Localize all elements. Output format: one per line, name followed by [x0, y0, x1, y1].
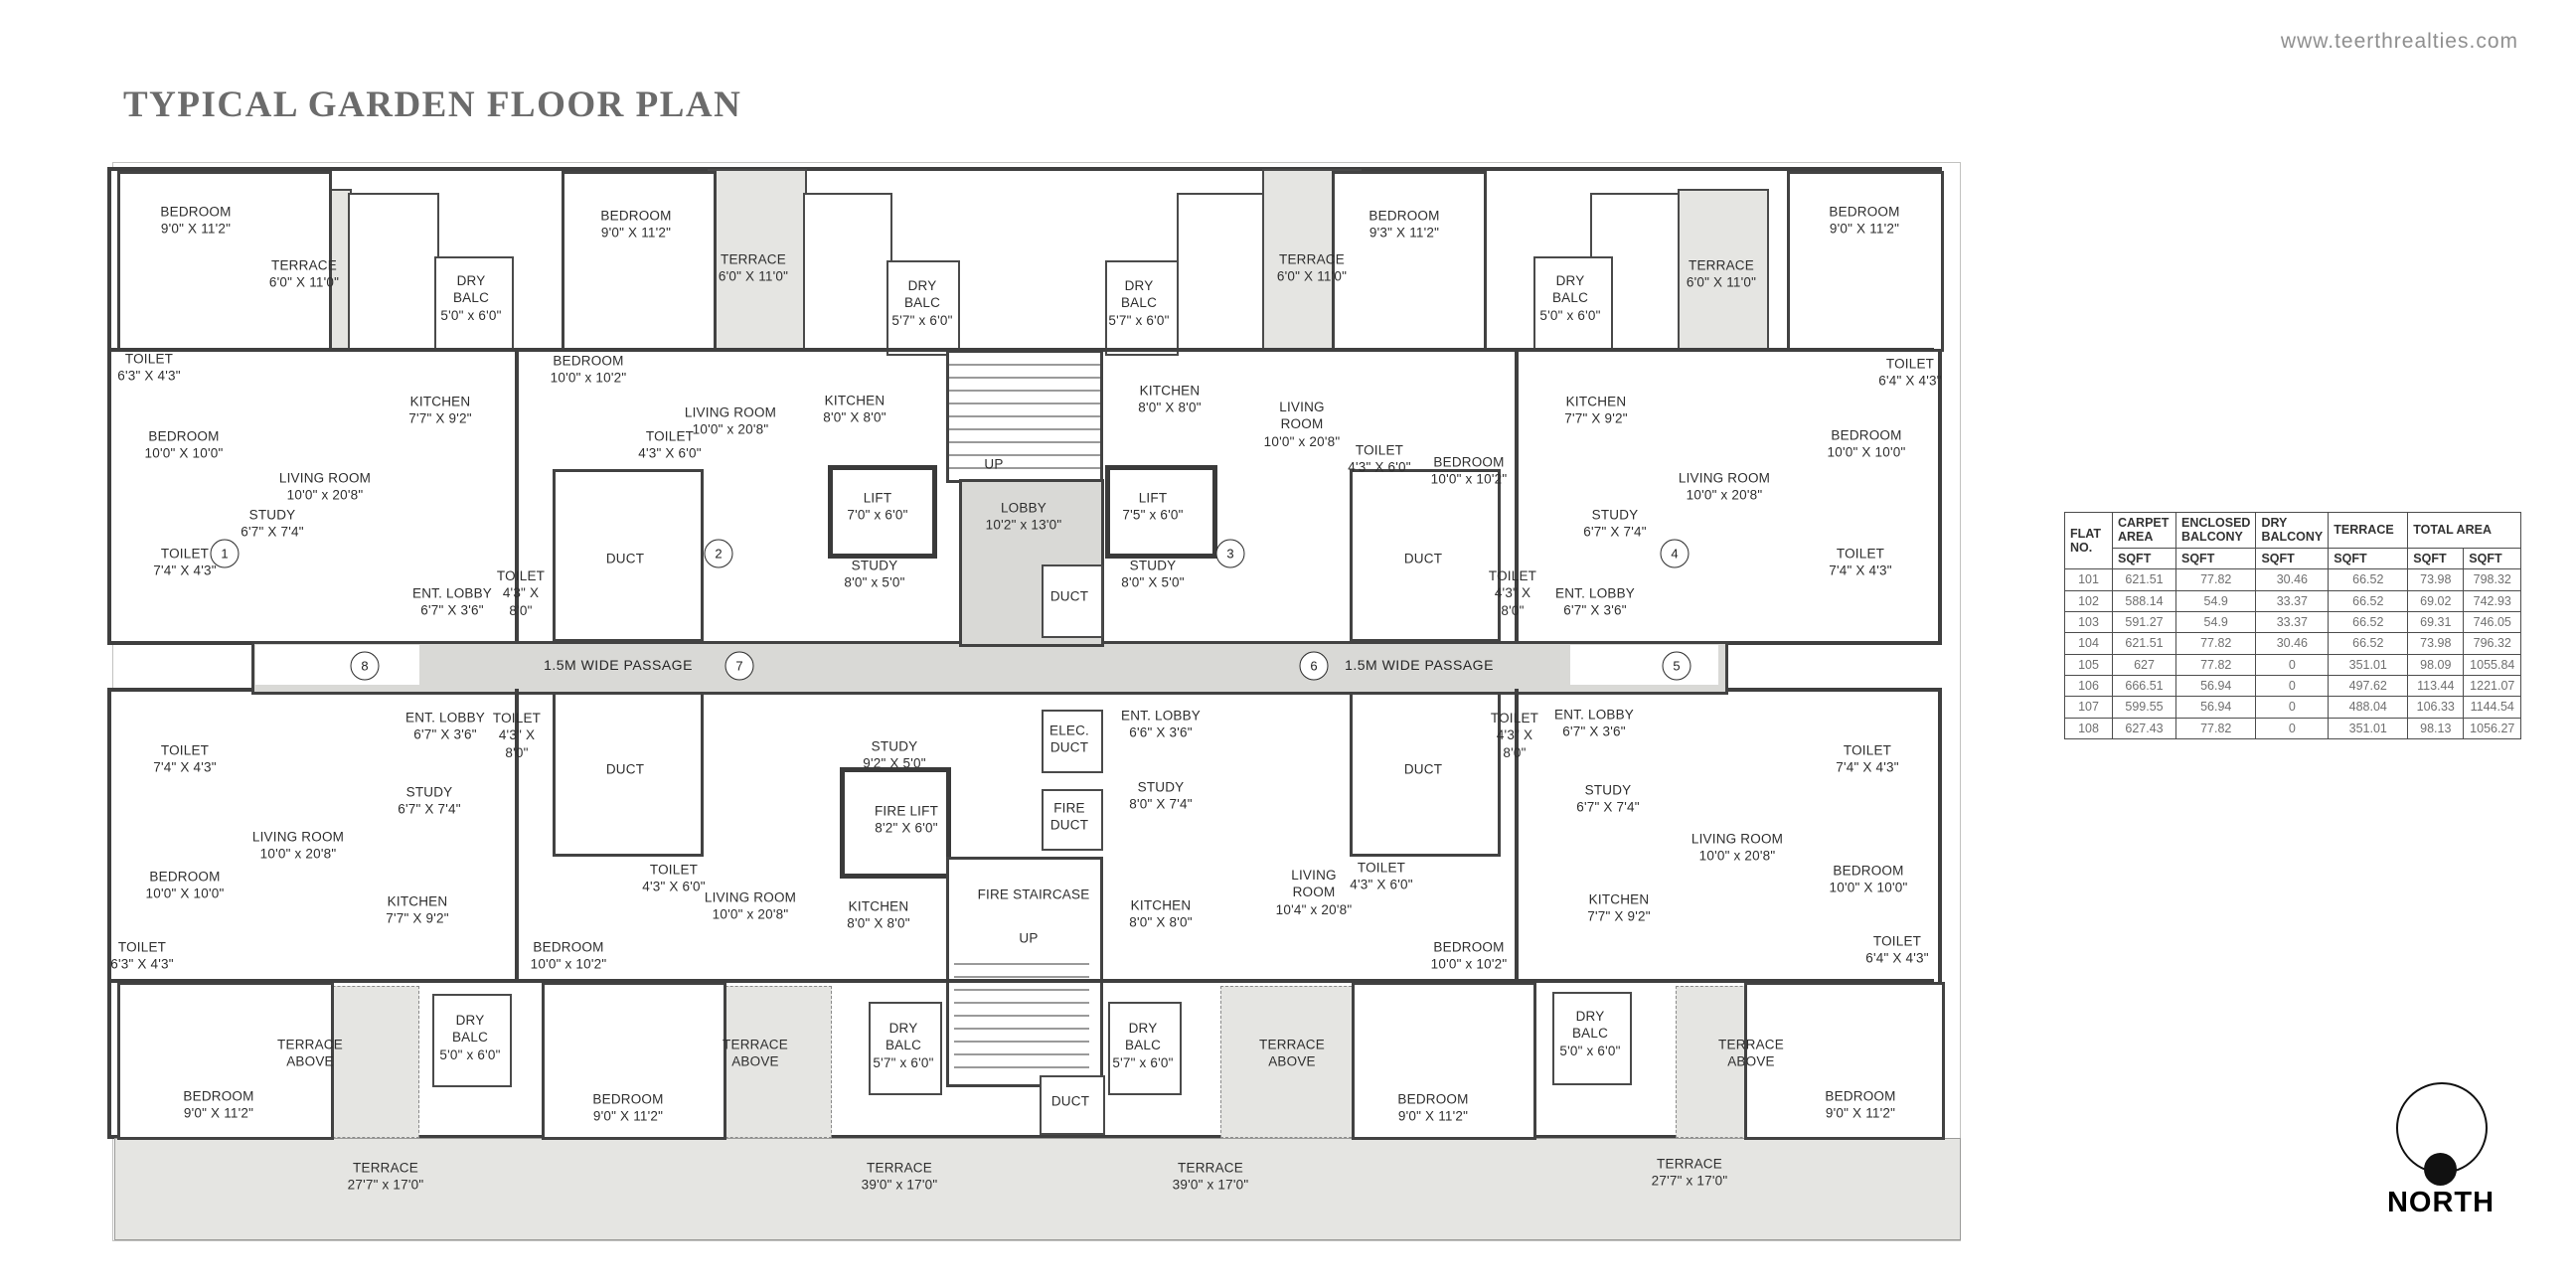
- room-label: DRY BALC 5'0" x 6'0": [439, 1012, 500, 1063]
- corridor-end-left: [255, 645, 419, 685]
- room-label: TERRACE 6'0" X 11'0": [719, 251, 788, 286]
- room-label: ENT. LOBBY 6'7" X 3'6": [1555, 585, 1635, 620]
- room-label: BEDROOM 10'0" x 10'2": [531, 939, 607, 974]
- room-label: KITCHEN 7'7" X 9'2": [1564, 394, 1627, 428]
- wall: [111, 348, 1934, 352]
- balcony-zone: [348, 193, 439, 352]
- room-label: DUCT: [1051, 1092, 1089, 1109]
- table-unit-cell: SQFT: [2408, 548, 2464, 568]
- room-label: BEDROOM 10'0" x 10'2": [1431, 454, 1508, 489]
- corridor: [251, 641, 1728, 695]
- table-cell: 798.32: [2464, 569, 2521, 590]
- room-label: ENT. LOBBY 6'7" X 3'6": [405, 710, 485, 744]
- table-cell: 77.82: [2176, 569, 2256, 590]
- room-label: BEDROOM 9'0" X 11'2": [600, 208, 671, 242]
- staircase: [946, 350, 1103, 483]
- room-label: LIVING ROOM 10'0" x 20'8": [252, 829, 344, 864]
- room-label: TERRACE ABOVE: [723, 1037, 788, 1071]
- room-label: BEDROOM 10'0" X 10'0": [146, 869, 225, 903]
- table-row: 104621.5177.8230.4666.5273.98796.32: [2065, 633, 2521, 654]
- room-label: BEDROOM 9'0" X 11'2": [1825, 1088, 1895, 1123]
- room-label: TOILET 4'3" X 6'0": [1350, 860, 1412, 894]
- room-label: ENT. LOBBY 6'7" X 3'6": [412, 585, 492, 620]
- room-label: LIVING ROOM 10'0" x 20'8": [1264, 399, 1341, 450]
- table-cell: 621.51: [2113, 633, 2176, 654]
- table-cell: 106: [2065, 676, 2113, 697]
- table-cell: 69.02: [2408, 590, 2464, 611]
- table-cell: 0: [2256, 697, 2329, 718]
- fire-staircase-steps: [954, 952, 1089, 1071]
- room-label: STUDY 6'7" X 7'4": [398, 784, 460, 819]
- table-cell: 0: [2256, 654, 2329, 675]
- room-label: DUCT: [1404, 550, 1442, 566]
- room-label: LIVING ROOM 10'0" x 20'8": [685, 404, 776, 439]
- room-label: TERRACE ABOVE: [1259, 1037, 1325, 1071]
- table-cell: 588.14: [2113, 590, 2176, 611]
- room-label: DRY BALC 5'7" x 6'0": [873, 1020, 933, 1071]
- table-cell: 101: [2065, 569, 2113, 590]
- table-cell: 113.44: [2408, 676, 2464, 697]
- room-label: TERRACE 27'7" x 17'0": [348, 1160, 424, 1195]
- room-label: UP: [984, 455, 1003, 472]
- table-unit-cell: SQFT: [2464, 548, 2521, 568]
- table-unit-cell: SQFT: [2113, 548, 2176, 568]
- room-label: BEDROOM 10'0" X 10'0": [1828, 427, 1906, 462]
- room-label: TERRACE 6'0" X 11'0": [1687, 257, 1756, 292]
- table-cell: 0: [2256, 718, 2329, 738]
- room-label: KITCHEN 8'0" X 8'0": [1129, 897, 1192, 932]
- room-label: LIFT 7'5" x 6'0": [1122, 490, 1183, 525]
- table-cell: 56.94: [2176, 676, 2256, 697]
- table-cell: 742.93: [2464, 590, 2521, 611]
- table-cell: 107: [2065, 697, 2113, 718]
- room-label: LIFT 7'0" x 6'0": [847, 490, 907, 525]
- table-row: 10562777.820351.0198.091055.84: [2065, 654, 2521, 675]
- room-label: TERRACE 39'0" x 17'0": [1173, 1160, 1249, 1195]
- room-label: ENT. LOBBY 6'6" X 3'6": [1121, 708, 1201, 742]
- room-label: TOILET 4'3" X 8'0": [1489, 567, 1536, 619]
- table-cell: 591.27: [2113, 611, 2176, 632]
- room-label: TOILET 6'3" X 4'3": [110, 939, 173, 974]
- table-cell: 56.94: [2176, 697, 2256, 718]
- table-cell: 666.51: [2113, 676, 2176, 697]
- table-cell: 30.46: [2256, 633, 2329, 654]
- bedroom-zone: [1787, 171, 1944, 352]
- room-label: BEDROOM 9'3" X 11'2": [1368, 208, 1439, 242]
- table-cell: 104: [2065, 633, 2113, 654]
- room-label: TOILET 4'3" X 6'0": [642, 862, 705, 896]
- room-label: TERRACE ABOVE: [277, 1037, 343, 1071]
- flat-number-marker: 3: [1216, 540, 1245, 568]
- room-label: KITCHEN 8'0" X 8'0": [847, 898, 909, 933]
- passage-label: 1.5M WIDE PASSAGE: [1345, 657, 1494, 675]
- table-cell: 627: [2113, 654, 2176, 675]
- room-label: DRY BALC 5'7" x 6'0": [1112, 1020, 1173, 1071]
- wall: [111, 979, 1934, 983]
- room-label: STUDY 6'7" X 7'4": [1576, 782, 1639, 817]
- table-cell: 69.31: [2408, 611, 2464, 632]
- area-table: FLAT NO.CARPET AREAENCLOSED BALCONYDRY B…: [2064, 512, 2521, 739]
- table-cell: 66.52: [2329, 633, 2408, 654]
- room-label: BEDROOM 9'0" X 11'2": [592, 1091, 663, 1126]
- table-cell: 73.98: [2408, 569, 2464, 590]
- flat-number-marker: 6: [1300, 652, 1329, 681]
- flat-number-marker: 2: [705, 540, 733, 568]
- room-label: KITCHEN 7'7" X 9'2": [1587, 891, 1650, 926]
- room-label: UP: [1019, 929, 1038, 946]
- table-row: 101621.5177.8230.4666.5273.98798.32: [2065, 569, 2521, 590]
- north-label: NORTH: [2365, 1187, 2516, 1219]
- table-cell: 98.13: [2408, 718, 2464, 738]
- table-cell: 66.52: [2329, 611, 2408, 632]
- table-cell: 54.9: [2176, 590, 2256, 611]
- room-label: FIRE DUCT: [1050, 800, 1088, 835]
- room-label: LIVING ROOM 10'0" x 20'8": [1679, 470, 1770, 505]
- room-label: BEDROOM 9'0" X 11'2": [183, 1088, 253, 1123]
- room-label: DRY BALC 5'0" x 6'0": [1539, 272, 1600, 324]
- room-label: TOILET 6'4" X 4'3": [1878, 356, 1941, 391]
- room-label: DUCT: [1404, 760, 1442, 777]
- table-cell: 33.37: [2256, 611, 2329, 632]
- table-cell: 351.01: [2329, 718, 2408, 738]
- room-label: STUDY 8'0" X 5'0": [1121, 558, 1184, 592]
- flat-number-marker: 5: [1663, 652, 1691, 681]
- flat-number-marker: 7: [725, 652, 754, 681]
- room-label: KITCHEN 7'7" X 9'2": [408, 394, 471, 428]
- room-label: TOILET 7'4" X 4'3": [153, 546, 216, 580]
- table-cell: 103: [2065, 611, 2113, 632]
- room-label: LIVING ROOM 10'4" x 20'8": [1276, 867, 1353, 918]
- room-label: STUDY 8'0" x 5'0": [844, 558, 904, 592]
- table-cell: 488.04: [2329, 697, 2408, 718]
- room-label: FIRE STAIRCASE: [978, 885, 1090, 902]
- passage-label: 1.5M WIDE PASSAGE: [544, 657, 693, 675]
- table-cell: 621.51: [2113, 569, 2176, 590]
- table-cell: 1055.84: [2464, 654, 2521, 675]
- room-label: LIVING ROOM 10'0" x 20'8": [1691, 831, 1783, 866]
- table-header-cell: TOTAL AREA: [2408, 513, 2521, 549]
- room-label: TOILET 4'3" X 6'0": [1348, 442, 1410, 477]
- corridor-end-right: [1570, 645, 1718, 685]
- area-table-body: 101621.5177.8230.4666.5273.98798.3210258…: [2065, 569, 2521, 739]
- table-cell: 66.52: [2329, 569, 2408, 590]
- room-label: KITCHEN 8'0" X 8'0": [1138, 383, 1201, 417]
- table-cell: 627.43: [2113, 718, 2176, 738]
- flat-number-marker: 4: [1661, 540, 1690, 568]
- bedroom-zone: [1332, 171, 1487, 352]
- table-unit-cell: SQFT: [2176, 548, 2256, 568]
- room-label: ELEC. DUCT: [1049, 723, 1089, 757]
- table-row: 103591.2754.933.3766.5269.31746.05: [2065, 611, 2521, 632]
- table-cell: 351.01: [2329, 654, 2408, 675]
- area-table-head: FLAT NO.CARPET AREAENCLOSED BALCONYDRY B…: [2065, 513, 2521, 569]
- table-header-cell: CARPET AREA: [2113, 513, 2176, 549]
- room-label: BEDROOM 10'0" X 10'0": [1830, 863, 1908, 897]
- room-label: ENT. LOBBY 6'7" X 3'6": [1554, 707, 1634, 741]
- balcony-zone: [803, 193, 892, 352]
- room-label: DUCT: [606, 550, 644, 566]
- table-cell: 102: [2065, 590, 2113, 611]
- table-cell: 1056.27: [2464, 718, 2521, 738]
- room-label: DRY BALC 5'7" x 6'0": [1108, 277, 1169, 329]
- room-label: DRY BALC 5'7" x 6'0": [891, 277, 952, 329]
- room-label: BEDROOM 9'0" X 11'2": [1829, 204, 1899, 239]
- room-label: TOILET 6'4" X 4'3": [1865, 933, 1928, 968]
- room-label: TOILET 6'3" X 4'3": [117, 351, 180, 386]
- room-label: TERRACE 6'0" X 11'0": [269, 257, 339, 292]
- flat-number-marker: 1: [211, 540, 240, 568]
- table-header-cell: ENCLOSED BALCONY: [2176, 513, 2256, 549]
- table-cell: 108: [2065, 718, 2113, 738]
- room-label: BEDROOM 10'0" X 10'0": [145, 428, 224, 463]
- room-label: TERRACE 39'0" x 17'0": [862, 1160, 938, 1195]
- room-label: STUDY 6'7" X 7'4": [241, 507, 303, 542]
- room-label: BEDROOM 10'0" x 10'2": [551, 353, 627, 388]
- room-label: TOILET 7'4" X 4'3": [1836, 742, 1898, 777]
- table-header-cell: FLAT NO.: [2065, 513, 2113, 569]
- table-cell: 77.82: [2176, 633, 2256, 654]
- table-cell: 54.9: [2176, 611, 2256, 632]
- flat-number-marker: 8: [351, 652, 380, 681]
- table-cell: 77.82: [2176, 654, 2256, 675]
- room-label: DRY BALC 5'0" x 6'0": [1559, 1008, 1620, 1059]
- table-cell: 77.82: [2176, 718, 2256, 738]
- table-cell: 30.46: [2256, 569, 2329, 590]
- table-cell: 1221.07: [2464, 676, 2521, 697]
- website-url: www.teerthrealties.com: [2281, 30, 2518, 54]
- north-compass-dot-icon: [2424, 1153, 2457, 1186]
- table-row: 106666.5156.940497.62113.441221.07: [2065, 676, 2521, 697]
- room-label: TOILET 7'4" X 4'3": [153, 742, 216, 777]
- room-label: TOILET 7'4" X 4'3": [1829, 546, 1891, 580]
- room-label: BEDROOM 10'0" x 10'2": [1431, 939, 1508, 974]
- room-label: TOILET 4'3" X 8'0": [497, 567, 545, 619]
- table-header-cell: DRY BALCONY: [2256, 513, 2329, 549]
- room-label: DUCT: [606, 760, 644, 777]
- table-row: 102588.1454.933.3766.5269.02742.93: [2065, 590, 2521, 611]
- table-cell: 1144.54: [2464, 697, 2521, 718]
- floor-plan: BEDROOM 9'0" X 11'2"TERRACE 6'0" X 11'0"…: [0, 0, 2037, 1288]
- room-label: LIVING ROOM 10'0" x 20'8": [279, 470, 371, 505]
- table-cell: 73.98: [2408, 633, 2464, 654]
- table-cell: 98.09: [2408, 654, 2464, 675]
- table-unit-cell: SQFT: [2256, 548, 2329, 568]
- room-label: STUDY 8'0" X 7'4": [1129, 779, 1192, 814]
- table-cell: 599.55: [2113, 697, 2176, 718]
- table-cell: 796.32: [2464, 633, 2521, 654]
- room-label: KITCHEN 7'7" X 9'2": [386, 893, 448, 928]
- table-cell: 33.37: [2256, 590, 2329, 611]
- room-label: TOILET 4'3" X 8'0": [493, 710, 541, 761]
- table-header-cell: TERRACE: [2329, 513, 2408, 549]
- table-cell: 0: [2256, 676, 2329, 697]
- room-label: FIRE LIFT 8'2" X 6'0": [875, 803, 938, 838]
- table-cell: 746.05: [2464, 611, 2521, 632]
- table-cell: 66.52: [2329, 590, 2408, 611]
- table-cell: 106.33: [2408, 697, 2464, 718]
- bedroom-zone: [562, 171, 717, 352]
- room-label: STUDY 9'2" X 5'0": [863, 738, 925, 773]
- room-label: DUCT: [1050, 587, 1088, 604]
- table-unit-cell: SQFT: [2329, 548, 2408, 568]
- room-label: DRY BALC 5'0" x 6'0": [440, 272, 501, 324]
- room-label: TOILET 4'3" X 8'0": [1491, 710, 1538, 761]
- table-row: 108627.4377.820351.0198.131056.27: [2065, 718, 2521, 738]
- balcony-zone: [1177, 193, 1266, 352]
- table-row: 107599.5556.940488.04106.331144.54: [2065, 697, 2521, 718]
- room-label: TERRACE 6'0" X 11'0": [1277, 251, 1347, 286]
- room-label: BEDROOM 9'0" X 11'2": [1397, 1091, 1468, 1126]
- room-label: TERRACE 27'7" x 17'0": [1652, 1156, 1728, 1191]
- table-cell: 105: [2065, 654, 2113, 675]
- table-cell: 497.62: [2329, 676, 2408, 697]
- room-label: TERRACE ABOVE: [1718, 1037, 1784, 1071]
- room-label: KITCHEN 8'0" X 8'0": [823, 393, 885, 427]
- room-label: STUDY 6'7" X 7'4": [1583, 507, 1646, 542]
- room-label: LIVING ROOM 10'0" x 20'8": [705, 889, 796, 924]
- room-label: LOBBY 10'2" x 13'0": [986, 500, 1062, 535]
- room-label: BEDROOM 9'0" X 11'2": [160, 204, 231, 239]
